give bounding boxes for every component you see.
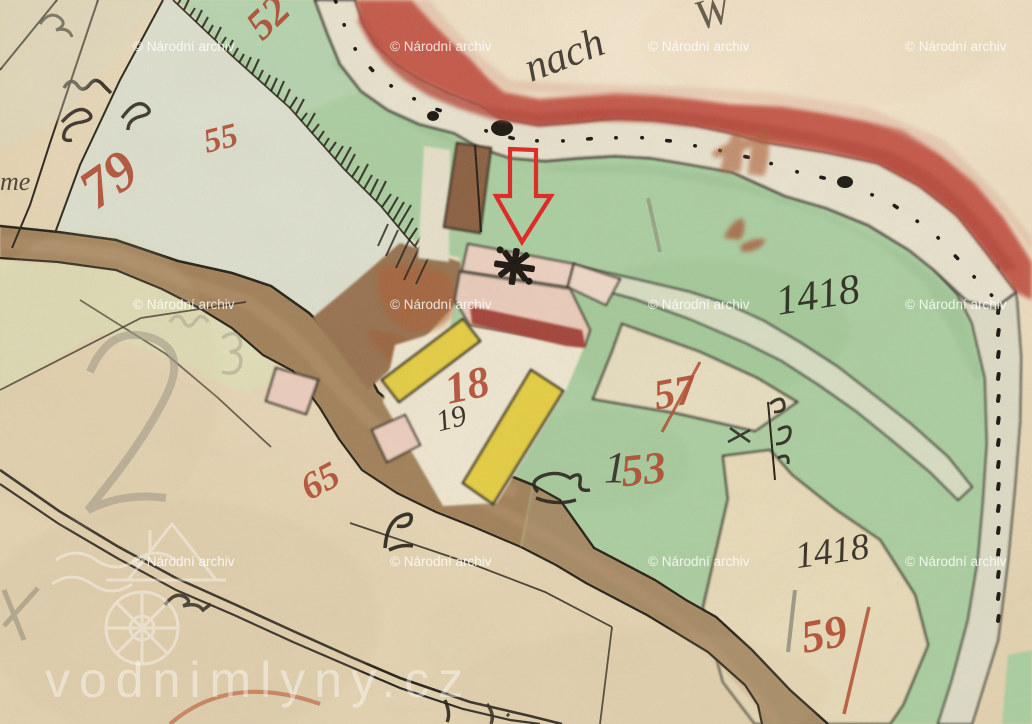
svg-text:© Národní archiv: © Národní archiv xyxy=(390,39,492,54)
svg-text:vodnimlyny.cz: vodnimlyny.cz xyxy=(45,652,472,708)
svg-text:© Národní archiv: © Národní archiv xyxy=(648,297,750,312)
svg-text:© Národní archiv: © Národní archiv xyxy=(905,39,1007,54)
svg-text:© Národní archiv: © Národní archiv xyxy=(133,39,235,54)
svg-text:© Národní archiv: © Národní archiv xyxy=(905,554,1007,569)
svg-text:© Národní archiv: © Národní archiv xyxy=(648,39,750,54)
svg-text:© Národní archiv: © Národní archiv xyxy=(905,297,1007,312)
svg-text:© Národní archiv: © Národní archiv xyxy=(390,554,492,569)
svg-text:© Národní archiv: © Národní archiv xyxy=(390,297,492,312)
svg-text:© Národní archiv: © Národní archiv xyxy=(133,554,235,569)
svg-text:© Národní archiv: © Národní archiv xyxy=(648,554,750,569)
svg-text:© Národní archiv: © Národní archiv xyxy=(133,297,235,312)
